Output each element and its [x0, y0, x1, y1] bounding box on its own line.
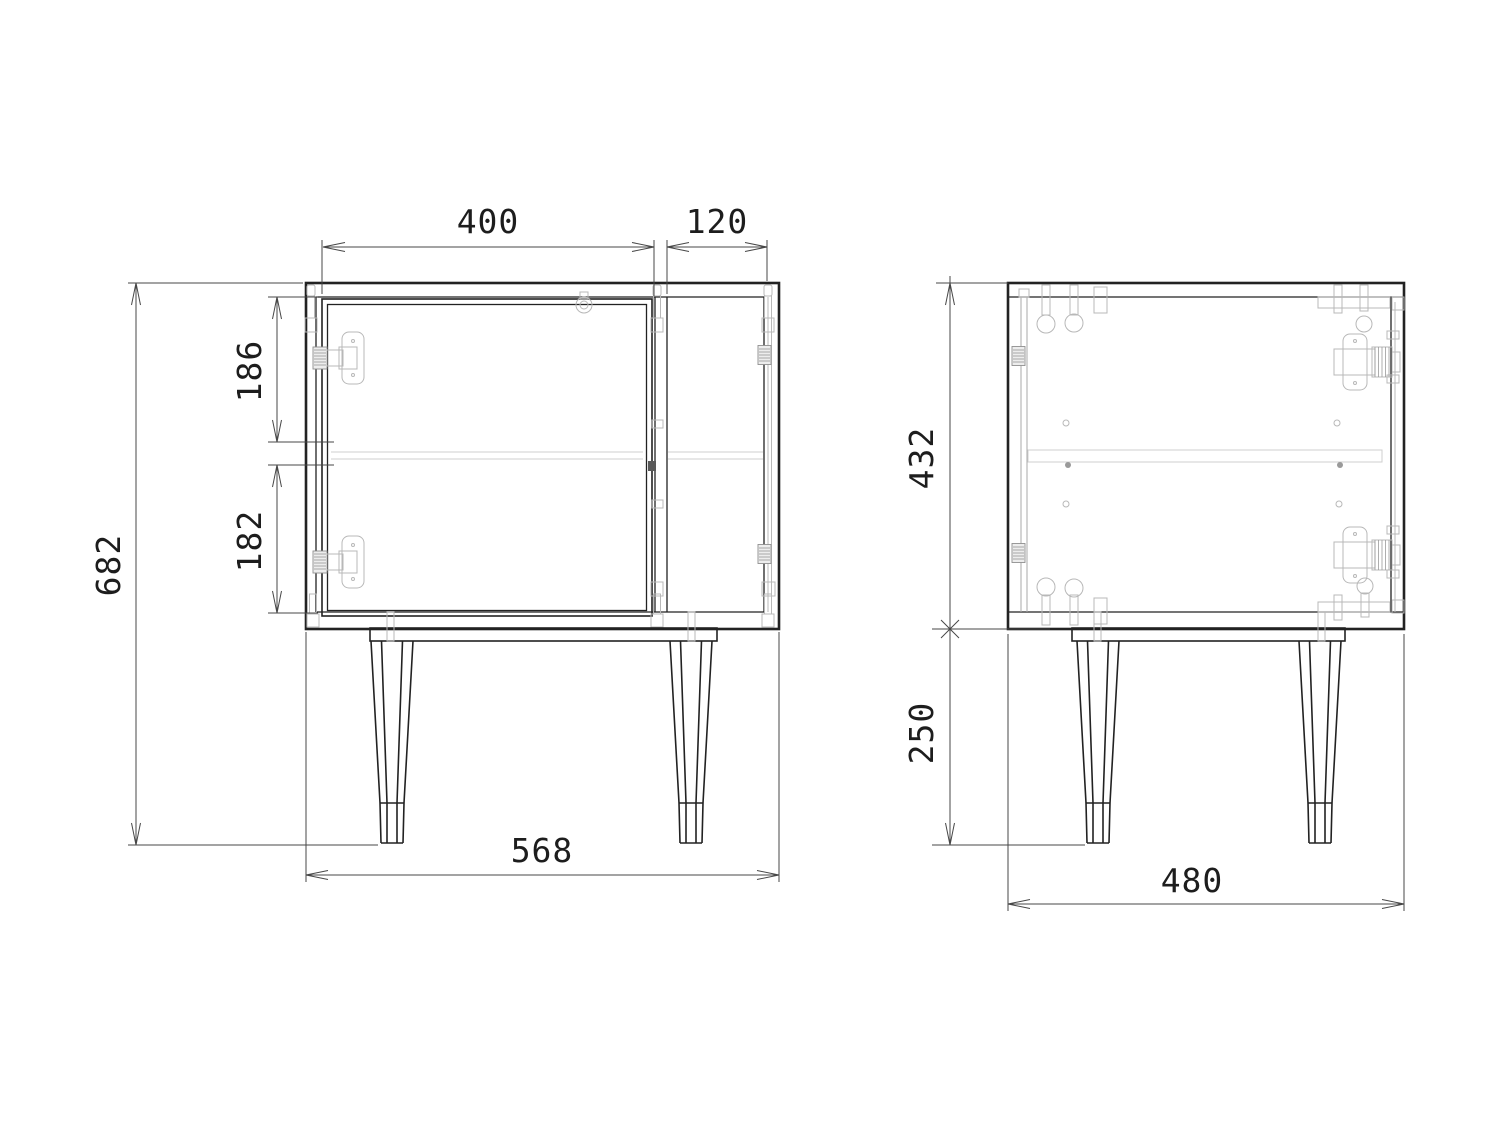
front-door-inner-edge	[328, 305, 647, 611]
dim-leg-height-label: 250	[902, 702, 941, 765]
hinge-rail-tab	[1387, 331, 1399, 339]
side-carcass-inner-faces	[1008, 297, 1404, 612]
shelf-pin-hole	[1063, 501, 1069, 507]
shelf-pin	[1337, 462, 1343, 468]
bay-back-edge	[768, 297, 772, 612]
front-carcass-outline	[306, 283, 779, 629]
shelf-end-nib	[648, 461, 656, 471]
dim-overall-width-label: 568	[511, 831, 574, 870]
cabinet-orthographic-drawing: 400 120 186 182 682 568	[0, 0, 1500, 1125]
door-hinge-lower	[313, 536, 364, 588]
front-leg-right	[670, 641, 712, 843]
front-view	[305, 283, 779, 843]
dimensions: 400 120 186 182 682 568	[89, 202, 1404, 911]
dim-overall-depth: 480	[1008, 634, 1404, 911]
hinge-rail-tab	[1387, 526, 1399, 534]
partition-cam-housing	[652, 500, 663, 508]
shelf-hidden-side	[1028, 450, 1382, 462]
fittings-top-left	[1037, 285, 1107, 333]
shelf-hidden-front	[331, 452, 763, 459]
leg-bolt-front	[1094, 612, 1101, 641]
dim-overall-height-label: 682	[89, 534, 128, 597]
dim-lower-opening-label: 182	[230, 510, 269, 573]
cam-bolt-bottom-left	[307, 594, 319, 627]
leg-bolt-rear	[1318, 612, 1325, 641]
side-view	[1008, 283, 1404, 843]
dim-lower-opening: 182	[230, 465, 334, 613]
door-edge-hidden	[1021, 297, 1027, 612]
partition-cam-housing	[652, 420, 663, 428]
bay-hinge-boss-upper	[758, 346, 771, 365]
dim-leg-height: 250	[902, 702, 955, 845]
front-leg-left	[371, 641, 413, 843]
hinge-rail-tab	[1387, 570, 1399, 578]
front-door	[322, 299, 652, 616]
technical-drawing-canvas: 400 120 186 182 682 568	[0, 0, 1500, 1125]
door-cup-boss-lower	[1012, 544, 1025, 563]
bay-hinge-boss-lower	[758, 545, 771, 564]
door-catch	[576, 292, 592, 313]
side-carcass-outline	[1008, 283, 1404, 629]
shelf-pin	[1065, 462, 1071, 468]
dim-door-width-label: 400	[457, 202, 520, 241]
dim-bay-width-label: 120	[686, 202, 749, 241]
dim-overall-depth-label: 480	[1161, 861, 1224, 900]
dim-upper-opening-label: 186	[230, 340, 269, 403]
side-leg-rear	[1299, 641, 1341, 843]
dim-bay-width: 120	[667, 202, 767, 294]
front-carcass-inner-faces	[316, 297, 764, 612]
shelf-pin-hole	[1063, 420, 1069, 426]
leg-bolt-right	[688, 612, 695, 641]
door-edge-cap	[1019, 289, 1029, 297]
shelf-pin-hole	[1334, 420, 1340, 426]
front-partition	[655, 297, 667, 612]
shelf-pin-hole	[1336, 501, 1342, 507]
fittings-bottom-left	[1037, 578, 1107, 625]
side-hinge-lower	[1334, 527, 1400, 583]
door-hinge-upper	[313, 332, 364, 384]
side-leg-front	[1077, 641, 1119, 843]
side-hinge-upper	[1334, 334, 1400, 390]
door-cup-boss-upper	[1012, 347, 1025, 366]
dim-upper-opening: 186	[230, 297, 334, 442]
dim-carcass-height-label: 432	[902, 427, 941, 490]
